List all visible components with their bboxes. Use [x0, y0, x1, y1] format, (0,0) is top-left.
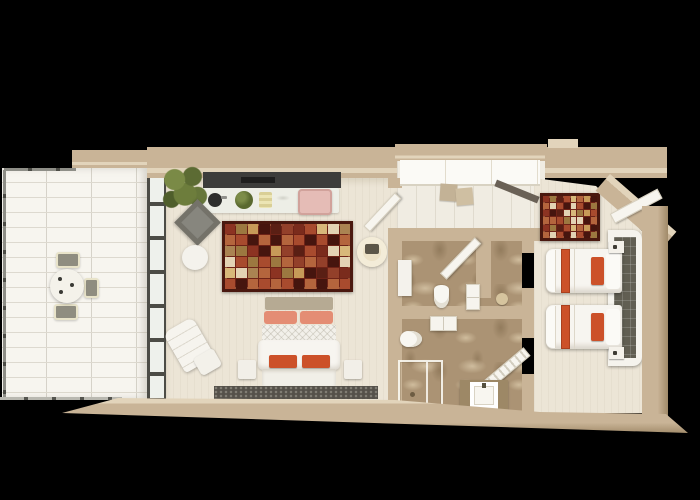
rug-cell — [557, 217, 563, 223]
rug-cell — [571, 210, 577, 216]
rug-cell — [248, 246, 258, 256]
rug-cell — [305, 268, 315, 278]
rug-cell — [225, 279, 235, 289]
rug-cell — [259, 268, 269, 278]
rug-cell — [271, 268, 281, 278]
square-sink — [470, 382, 498, 409]
rug-cell — [571, 196, 577, 202]
round-ottoman — [182, 245, 208, 270]
shower-drain — [410, 392, 415, 397]
rug-cell — [564, 196, 570, 202]
rug-cell — [550, 203, 556, 209]
faucet — [221, 196, 227, 199]
glass-railing-bottom — [0, 397, 122, 400]
rug-cell — [328, 257, 338, 267]
rug-cell — [225, 246, 235, 256]
rug-cell — [236, 224, 246, 234]
wall-top-terrace — [72, 150, 150, 168]
decor-item — [613, 245, 617, 249]
rug-cell — [236, 257, 246, 267]
place-setting — [70, 283, 74, 287]
rug-cell — [571, 232, 577, 238]
rug-cell — [225, 257, 235, 267]
head-cushion — [606, 253, 620, 289]
rug-cell — [248, 268, 258, 278]
blanket-fold — [574, 305, 575, 349]
cube-nightstand — [609, 347, 624, 359]
faucet — [482, 383, 486, 388]
rug-cell — [236, 246, 246, 256]
rug-cell — [248, 224, 258, 234]
footboard — [546, 250, 556, 292]
rug-cell — [557, 225, 563, 231]
rug-cell — [328, 246, 338, 256]
rug-cell — [282, 224, 292, 234]
rug-cell — [591, 210, 597, 216]
rug-cell — [591, 217, 597, 223]
rug-cell — [294, 224, 304, 234]
rug-cell — [271, 279, 281, 289]
dark-floor-runner — [214, 386, 378, 399]
rug-cell — [543, 217, 549, 223]
rug-cell — [282, 235, 292, 245]
rug-cell — [271, 235, 281, 245]
rug-cell — [584, 203, 590, 209]
bathroom-1-vanity — [398, 260, 412, 296]
head-cushion — [606, 309, 620, 345]
rug-cell — [564, 225, 570, 231]
rug-cell — [282, 257, 292, 267]
double-bed — [256, 297, 342, 389]
blanket-fold — [574, 249, 575, 293]
wall-top-closet — [395, 144, 547, 161]
nightstand-right — [344, 360, 362, 379]
twin-room-rug — [540, 193, 600, 241]
textured-blanket — [262, 325, 336, 340]
rug-cell — [317, 224, 327, 234]
orange-bed-runner — [561, 305, 570, 349]
dining-chair — [84, 278, 99, 298]
rug-cell — [236, 279, 246, 289]
rug-cell — [294, 257, 304, 267]
rug-cell — [225, 224, 235, 234]
rug-cell — [591, 203, 597, 209]
rug-cell — [550, 210, 556, 216]
rug-cell — [577, 217, 583, 223]
glass-railing-top — [4, 168, 76, 171]
rug-cell — [340, 235, 350, 245]
bed-headboard-pillows — [262, 369, 336, 386]
rug-cell — [225, 268, 235, 278]
rug-cell — [564, 203, 570, 209]
rug-cell — [248, 235, 258, 245]
rug-cell — [557, 210, 563, 216]
rug-cell — [591, 232, 597, 238]
twin-bed-1 — [546, 249, 622, 293]
vanity-divider — [443, 317, 444, 330]
rug-cell — [294, 268, 304, 278]
nightstand-left — [238, 360, 256, 379]
rug-cell — [305, 224, 315, 234]
kitchenette-dark-shelf — [203, 172, 341, 188]
toilet — [434, 285, 449, 308]
rug-cell — [248, 257, 258, 267]
washstand-divider — [467, 297, 479, 298]
floor-plan-stage — [0, 0, 700, 500]
rug-cell — [571, 225, 577, 231]
rug-cell — [584, 210, 590, 216]
dining-chair — [54, 304, 78, 320]
washstand — [466, 284, 480, 310]
orange-pillow — [591, 313, 604, 341]
round-stool — [496, 293, 508, 305]
rug-cell — [328, 235, 338, 245]
rug-cell — [271, 246, 281, 256]
round-cream-chair — [357, 237, 387, 267]
wardrobe-sliding-doors — [400, 160, 540, 186]
dining-chair — [56, 252, 80, 268]
rug-cell — [557, 196, 563, 202]
hood-vent — [241, 177, 275, 183]
rug-cell — [305, 246, 315, 256]
salmon-cushion — [264, 311, 297, 324]
orange-pillow — [269, 355, 297, 368]
bathroom-2-vanity — [430, 316, 457, 331]
rug-cell — [248, 279, 258, 289]
rug-cell — [282, 246, 292, 256]
rug-cell — [571, 217, 577, 223]
rug-cell — [282, 268, 292, 278]
rug-cell — [294, 246, 304, 256]
rug-cell — [271, 257, 281, 267]
rug-cell — [543, 232, 549, 238]
rug-cell — [550, 225, 556, 231]
decor-item — [613, 351, 617, 355]
rug-cell — [317, 246, 327, 256]
rug-cell — [550, 232, 556, 238]
rug-cell — [577, 225, 583, 231]
counter-plant — [235, 191, 253, 209]
place-setting — [59, 290, 63, 294]
rug-cell — [259, 224, 269, 234]
rug-cell — [543, 225, 549, 231]
rug-cell — [317, 279, 327, 289]
rug-cell — [259, 235, 269, 245]
rug-cell — [564, 217, 570, 223]
rug-cell — [564, 232, 570, 238]
rug-cell — [294, 235, 304, 245]
wall-entry — [545, 147, 667, 178]
rug-cell — [328, 224, 338, 234]
rug-cell — [543, 196, 549, 202]
rug-cell — [584, 217, 590, 223]
rug-cell — [584, 196, 590, 202]
place-setting — [58, 277, 62, 281]
toilet — [400, 331, 422, 347]
cube-nightstand — [609, 241, 624, 253]
rug-cell — [259, 257, 269, 267]
bathroom-right-wall — [522, 374, 534, 412]
rug-cell — [271, 224, 281, 234]
rug-cell — [282, 279, 292, 289]
rug-cell — [305, 257, 315, 267]
rug-cell — [305, 279, 315, 289]
rug-cell — [317, 257, 327, 267]
rug-cell — [564, 210, 570, 216]
sink — [208, 193, 222, 207]
rug-cell — [340, 224, 350, 234]
rug-cell — [543, 210, 549, 216]
bed-foot-bench — [265, 297, 333, 310]
rug-cell — [236, 235, 246, 245]
rug-cell — [340, 246, 350, 256]
bathroom-right-wall — [522, 288, 534, 338]
rug-cell — [584, 225, 590, 231]
dining-set — [48, 252, 102, 322]
rug-cell — [340, 268, 350, 278]
bathroom-top-wall — [388, 228, 546, 241]
chair-seat-shadow — [365, 244, 379, 254]
rug-cell — [557, 232, 563, 238]
footboard — [546, 306, 556, 348]
rug-cell — [550, 217, 556, 223]
rug-cell — [317, 268, 327, 278]
rug-cell — [591, 225, 597, 231]
rug-cell — [259, 279, 269, 289]
rug-cell — [236, 268, 246, 278]
orange-bed-runner — [561, 249, 570, 293]
rug-cell — [328, 279, 338, 289]
pink-ottoman — [298, 189, 332, 215]
rug-cell — [577, 210, 583, 216]
rug-cell — [317, 235, 327, 245]
rug-cell — [571, 203, 577, 209]
orange-pillow — [302, 355, 330, 368]
rug-cell — [340, 257, 350, 267]
rug-cell — [305, 235, 315, 245]
glass-railing-left — [3, 170, 6, 399]
twin-bed-2 — [546, 305, 622, 349]
rug-cell — [591, 196, 597, 202]
bottles — [259, 192, 272, 208]
main-patchwork-rug — [222, 221, 353, 292]
rug-cell — [294, 279, 304, 289]
rug-cell — [577, 196, 583, 202]
rug-cell — [550, 196, 556, 202]
rug-cell — [225, 235, 235, 245]
salmon-cushion — [300, 311, 333, 324]
rug-cell — [584, 232, 590, 238]
rug-cell — [557, 203, 563, 209]
folded-item — [455, 187, 473, 205]
bathroom-right-wall — [522, 241, 534, 253]
round-dining-table — [50, 269, 84, 303]
rug-cell — [340, 279, 350, 289]
rug-cell — [543, 203, 549, 209]
rug-cell — [259, 246, 269, 256]
orange-pillow — [591, 257, 604, 285]
rug-cell — [577, 232, 583, 238]
rug-cell — [328, 268, 338, 278]
wall-right — [642, 206, 668, 416]
bathroom-mid-wall — [397, 306, 522, 319]
rug-cell — [577, 203, 583, 209]
wall-entry-step — [548, 139, 578, 148]
